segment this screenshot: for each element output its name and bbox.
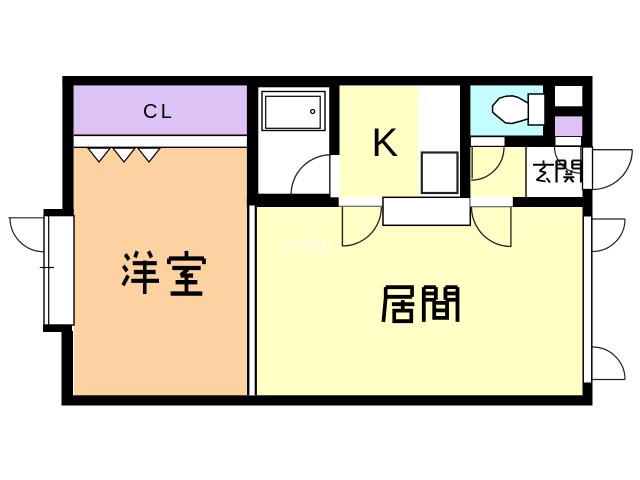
- svg-text:K: K: [372, 121, 399, 165]
- svg-text:L: L: [161, 101, 172, 123]
- svg-text:jogjog: jogjog: [282, 234, 331, 254]
- svg-text:C: C: [143, 101, 157, 123]
